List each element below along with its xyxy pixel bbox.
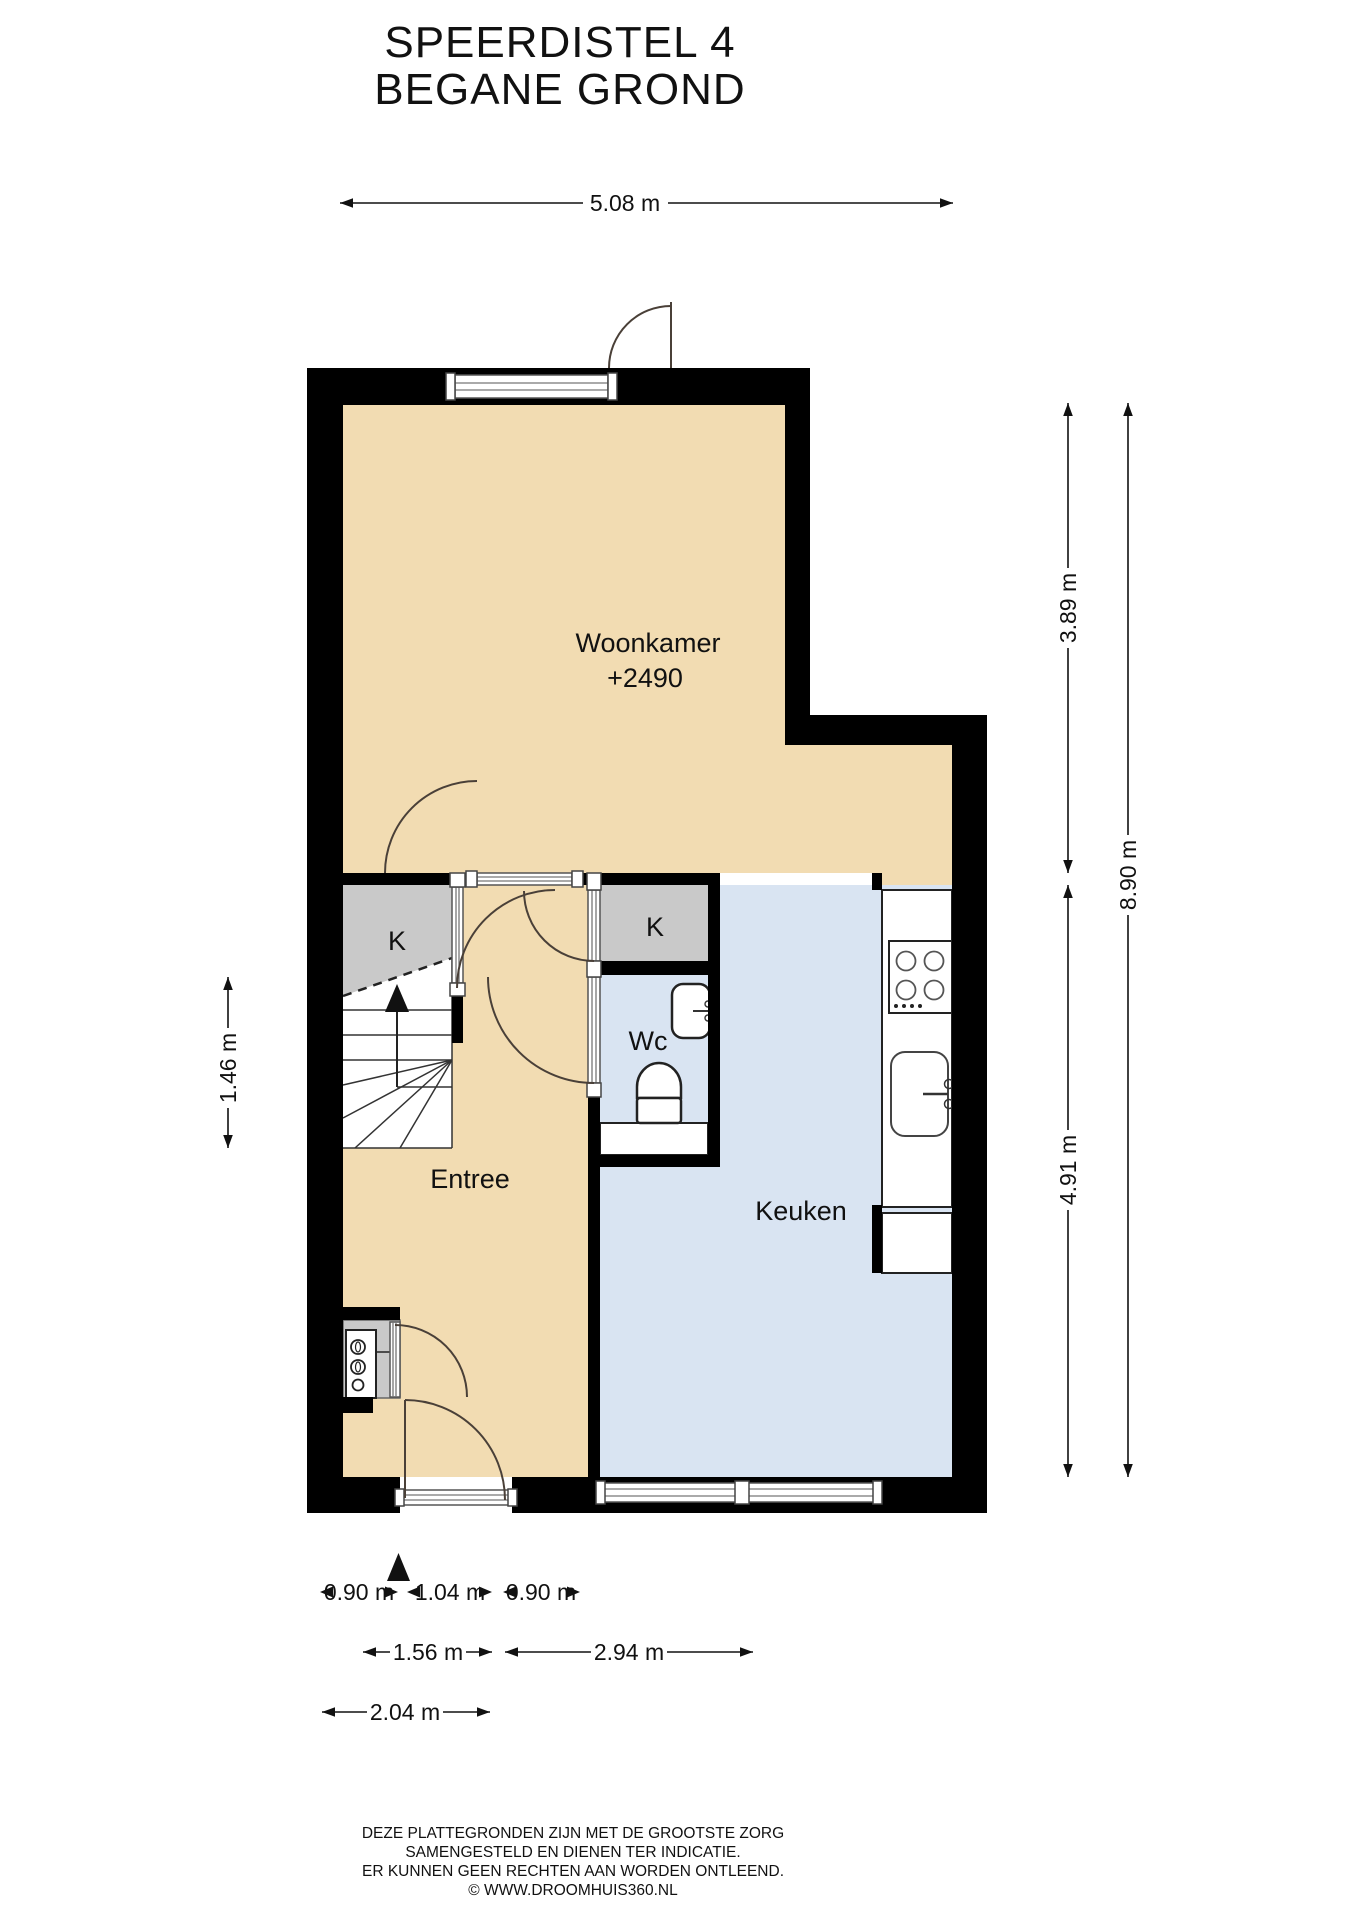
room-label-woonkamer: Woonkamer	[575, 628, 720, 658]
svg-text:0.90 m: 0.90 m	[324, 1579, 394, 1605]
svg-text:5.08 m: 5.08 m	[590, 190, 660, 216]
back-door	[609, 302, 671, 368]
dim-bottom-row2: 1.56 m 2.94 m	[363, 1639, 753, 1665]
kitchen-window	[596, 1481, 882, 1504]
wc-sink-icon	[672, 984, 711, 1038]
kitchen-counter	[882, 890, 954, 1273]
kitchen-sink-icon	[891, 1052, 954, 1136]
wc-door-jamb	[587, 961, 601, 1097]
dim-right-upper: 3.89 m	[1055, 403, 1081, 873]
closet-right-door-jamb	[587, 873, 601, 961]
svg-text:1.46 m: 1.46 m	[215, 1033, 241, 1103]
front-door-sill	[395, 1489, 517, 1506]
dim-right-lower: 4.91 m	[1055, 885, 1081, 1477]
room-label-keuken: Keuken	[755, 1196, 847, 1226]
footer-line-3: ER KUNNEN GEEN RECHTEN AAN WORDEN ONTLEE…	[362, 1863, 784, 1880]
plan-title-line2: BEGANE GROND	[374, 65, 745, 114]
plan-title-line1: SPEERDISTEL 4	[384, 18, 735, 67]
svg-text:2.04 m: 2.04 m	[370, 1699, 440, 1725]
dim-bottom-row3: 2.04 m	[322, 1699, 490, 1725]
top-window	[446, 373, 617, 400]
room-label-wc: Wc	[629, 1026, 668, 1056]
dim-top-width: 5.08 m	[340, 190, 953, 216]
floorplan-page: Woonkamer +2490 K K Wc Entree Keuken 5.0…	[0, 0, 1358, 1920]
toilet-icon	[637, 1063, 681, 1123]
svg-text:3.89 m: 3.89 m	[1055, 573, 1081, 643]
svg-text:8.90 m: 8.90 m	[1115, 840, 1141, 910]
room-label-entree: Entree	[430, 1164, 510, 1194]
floorplan-drawing: Woonkamer +2490 K K Wc Entree Keuken 5.0…	[0, 0, 1358, 1920]
interior-glass-panel	[466, 871, 583, 887]
svg-text:4.91 m: 4.91 m	[1055, 1135, 1081, 1205]
footer-line-2: SAMENGESTELD EN DIENEN TER INDICATIE.	[405, 1844, 740, 1861]
wc-shelf	[600, 1123, 708, 1155]
svg-text:0.90 m: 0.90 m	[506, 1579, 576, 1605]
footer-line-4: © WWW.DROOMHUIS360.NL	[468, 1882, 678, 1899]
entrance-marker-icon	[387, 1553, 410, 1581]
dim-right-total: 8.90 m	[1115, 403, 1141, 1477]
svg-text:1.56 m: 1.56 m	[393, 1639, 463, 1665]
dim-bottom-row1: 0.90 m 1.04 m 0.90 m	[320, 1579, 580, 1605]
room-label-closet-left: K	[388, 926, 406, 956]
stove-icon	[889, 941, 952, 1013]
dim-left-stairs: 1.46 m	[215, 977, 241, 1148]
room-label-woonkamer-level: +2490	[607, 663, 683, 693]
svg-text:1.04 m: 1.04 m	[415, 1579, 485, 1605]
plan-title: SPEERDISTEL 4 BEGANE GROND	[374, 18, 745, 114]
disclaimer-footer: DEZE PLATTEGRONDEN ZIJN MET DE GROOTSTE …	[362, 1825, 784, 1899]
room-label-closet-right: K	[646, 912, 664, 942]
meter-cabinet-door-jamb	[390, 1322, 400, 1397]
footer-line-1: DEZE PLATTEGRONDEN ZIJN MET DE GROOTSTE …	[362, 1825, 784, 1842]
svg-text:2.94 m: 2.94 m	[594, 1639, 664, 1665]
